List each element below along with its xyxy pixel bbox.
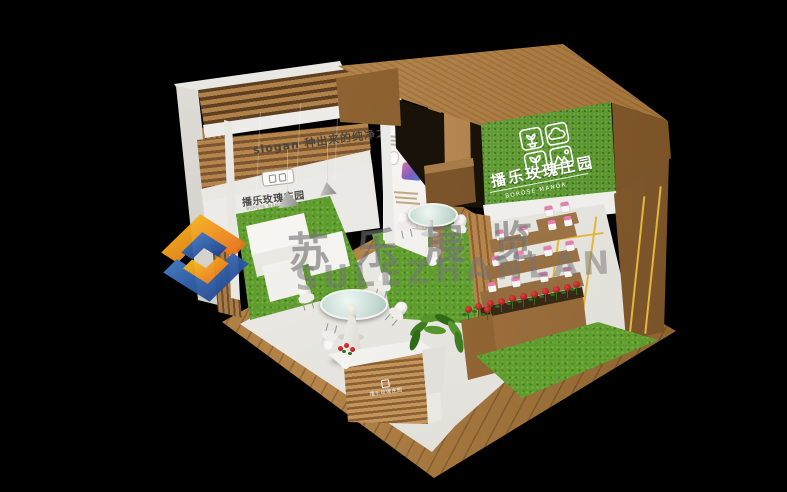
rose [553,286,560,293]
product-item [563,215,573,226]
flower-vase [341,356,350,369]
plaque-glyph [279,173,287,182]
flower-bloom [344,343,349,348]
rose [509,295,516,302]
rose [531,291,538,298]
rose [475,303,482,310]
watermark-logo [145,205,264,312]
rose [465,306,472,313]
mannequin-statue-head [347,304,357,316]
flower-leaf [348,352,352,355]
rose [498,298,505,305]
lamp-wire [287,150,288,192]
rose [484,306,491,313]
booth-render-scene: slogan 种出来的纯净之美 播乐玫瑰庄园 BOROSE MANOR [0,0,787,492]
potted-plant-icon [519,127,543,151]
lamp-wire [327,142,328,183]
rose [520,293,527,300]
plaque-glyph [269,174,277,183]
desk-logo-mark [380,379,389,388]
rose [542,288,549,295]
flower-leaf [342,350,346,353]
product-item [560,201,570,212]
cloud-icon [545,122,569,146]
